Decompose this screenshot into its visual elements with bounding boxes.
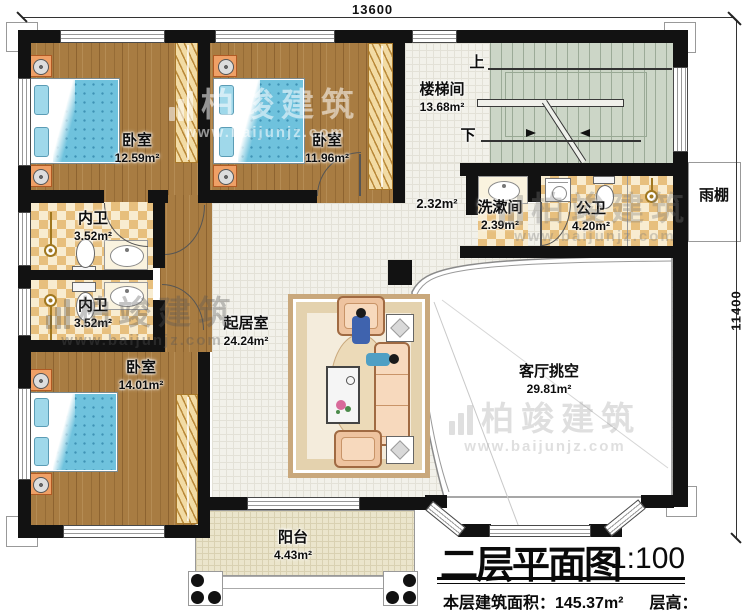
door-leaf — [359, 154, 361, 196]
lamp-icon — [218, 169, 234, 185]
sink-icon — [110, 286, 144, 307]
bay-wall-post — [641, 495, 674, 508]
side-table — [386, 436, 414, 464]
sliding-door — [247, 497, 360, 510]
room-label-living: 起居室24.24m² — [223, 314, 268, 349]
person-figure — [366, 353, 390, 366]
blanket-fold — [53, 80, 75, 162]
lamp-icon — [33, 169, 49, 185]
shower-head-icon — [645, 190, 658, 203]
room-label-bedroom2: 卧室11.96m² — [305, 131, 349, 166]
stair-up-line — [488, 68, 672, 70]
shower-head-icon — [44, 244, 57, 257]
nightstand — [28, 473, 52, 495]
dimension-line-right — [736, 20, 737, 538]
wardrobe — [176, 394, 198, 524]
room-label-bedroom1: 卧室12.59m² — [115, 131, 160, 166]
wall-segment — [528, 176, 541, 202]
wall-segment — [18, 270, 153, 280]
wall-segment — [198, 30, 210, 203]
pillow — [34, 127, 49, 157]
wall-segment — [18, 340, 165, 352]
dimension-line-top — [22, 17, 733, 18]
pillow — [34, 85, 49, 115]
room-label-void: 客厅挑空29.81m² — [519, 362, 579, 397]
room-label-washroom: 洗漱间2.39m² — [477, 198, 522, 233]
room-label-public-bath: 公卫4.20m² — [572, 199, 610, 234]
window — [18, 78, 31, 166]
window — [18, 388, 31, 480]
person-head — [389, 354, 399, 364]
stair-arrow — [580, 129, 590, 137]
nightstand — [213, 165, 237, 187]
balcony-column-cluster — [383, 571, 418, 606]
window — [673, 67, 688, 152]
shower-rod — [50, 212, 52, 246]
wall-segment — [153, 195, 165, 268]
coffee-table — [326, 366, 360, 424]
lamp-icon — [218, 59, 234, 75]
floor-plan: 卧室12.59m² 卧室11.96m² 楼梯间13.68m² 上 下 2.32m… — [0, 0, 750, 615]
wall-segment — [460, 246, 688, 258]
dimension-width: 13600 — [352, 2, 393, 17]
wall-segment — [18, 190, 104, 203]
window — [215, 30, 335, 43]
structural-column — [388, 260, 412, 285]
wall-segment — [466, 176, 478, 215]
wardrobe — [368, 43, 393, 190]
shower-rod — [50, 306, 52, 342]
plan-info: 本层建筑面积：145.37m²层高：3.3m — [443, 589, 750, 615]
room-label-balcony: 阳台4.43m² — [274, 528, 312, 563]
window — [18, 212, 31, 266]
nightstand — [213, 55, 237, 77]
window — [60, 30, 165, 43]
wall-segment — [673, 255, 688, 507]
stairs-up-label: 上 — [469, 53, 484, 73]
wardrobe — [175, 42, 198, 163]
sink-icon — [110, 245, 144, 267]
nightstand — [28, 165, 52, 187]
room-label-bath1: 内卫3.52m² — [74, 209, 112, 244]
blanket-fold — [53, 394, 75, 470]
wall-segment — [198, 352, 210, 538]
armchair — [334, 430, 382, 468]
toilet-tank — [72, 282, 96, 292]
bed — [28, 392, 118, 472]
balcony-column-cluster — [188, 571, 223, 606]
window — [412, 30, 457, 43]
lamp-icon — [33, 373, 49, 389]
pillow — [34, 398, 49, 426]
person-head — [356, 308, 366, 318]
partition-line — [627, 176, 628, 246]
toilet-tank — [593, 176, 615, 184]
cup — [346, 376, 355, 385]
room-label-canopy: 雨棚 — [699, 186, 729, 206]
flower-vase — [336, 400, 346, 410]
lamp-icon — [33, 477, 49, 493]
room-label-stairwell: 楼梯间13.68m² — [419, 80, 464, 115]
pillow — [34, 437, 49, 465]
balcony-edge — [195, 576, 415, 589]
window — [63, 525, 165, 538]
title-underline — [437, 583, 685, 584]
dimension-height: 11400 — [729, 287, 744, 335]
plan-title: 二层平面图 — [440, 534, 620, 589]
floor-area-info: 本层建筑面积：145.37m² — [443, 595, 624, 612]
stair-arrow — [526, 129, 536, 137]
side-table — [386, 314, 414, 342]
washing-machine-icon — [545, 178, 571, 202]
title-underline — [437, 577, 685, 580]
blanket-fold — [238, 80, 260, 162]
nightstand — [28, 55, 52, 77]
pillow — [219, 127, 234, 157]
wall-segment — [393, 30, 405, 203]
bed — [213, 78, 305, 164]
person-figure — [352, 316, 370, 344]
plan-scale: 1:100 — [610, 542, 685, 576]
bed — [28, 78, 120, 164]
window — [18, 288, 31, 336]
lamp-icon — [33, 59, 49, 75]
nightstand — [28, 369, 52, 391]
room-label-bedroom3: 卧室14.01m² — [119, 358, 164, 393]
wall-segment — [460, 163, 688, 176]
stair-down-line — [481, 140, 641, 142]
wall-segment — [205, 190, 317, 203]
room-label-bath2: 内卫3.52m² — [74, 296, 112, 331]
bay-window — [604, 499, 646, 536]
door-leaf — [540, 202, 542, 246]
stairs-down-label: 下 — [460, 126, 475, 146]
pillow — [219, 85, 234, 115]
hall-area-label: 2.32m² — [416, 196, 457, 213]
